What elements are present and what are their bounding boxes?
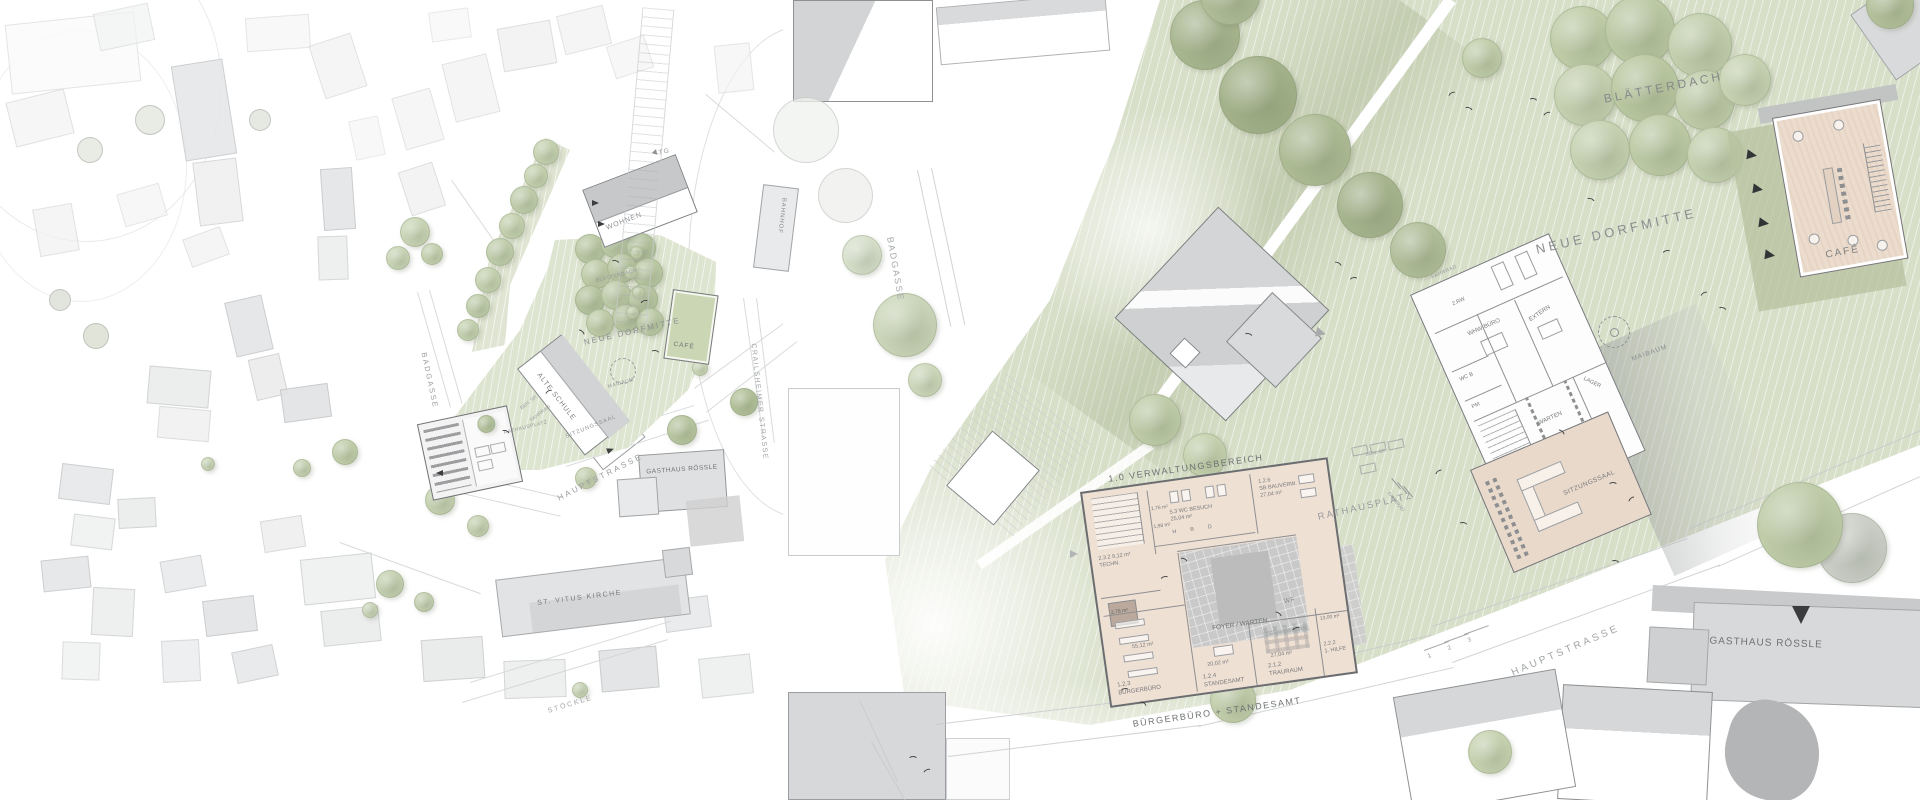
- left-deco-layer: [0, 0, 1920, 800]
- person-mark: [1434, 468, 1447, 480]
- tree: [1129, 394, 1181, 446]
- tree: [818, 168, 873, 223]
- deco-building: [1387, 438, 1405, 450]
- annex-extern-label: EXTERN: [1528, 305, 1552, 325]
- tree: [626, 233, 656, 263]
- stoeckle-label: STÖCKLE: [547, 695, 594, 715]
- annex-lager-label: LAGER: [1582, 376, 1602, 390]
- chair-grid: [1263, 622, 1310, 654]
- marker-triangle-icon: [1758, 217, 1769, 228]
- tree: [633, 258, 663, 288]
- road-line: [1464, 625, 1489, 635]
- road-line: [743, 298, 763, 437]
- road-line: [1452, 565, 1720, 663]
- tree: [628, 284, 658, 314]
- marker-triangle-icon: [436, 470, 443, 476]
- right-deco-layer: [0, 0, 1920, 800]
- deco-building: [793, 0, 933, 102]
- cafe-stairs: [1863, 141, 1892, 213]
- green-band: [1018, 0, 1502, 495]
- deco-building: [182, 226, 230, 268]
- green-alley: [470, 135, 580, 365]
- tree: [1605, 0, 1675, 65]
- tree: [621, 225, 635, 239]
- road-line: [429, 290, 462, 404]
- roessle-wing: [1647, 626, 1710, 685]
- building-shadow-blob: [1714, 691, 1831, 800]
- tree: [873, 293, 937, 357]
- annex-warten-label: WARTEN: [1537, 411, 1564, 428]
- marker-triangle-icon: [592, 200, 599, 206]
- tree: [612, 304, 640, 332]
- person-mark: [1608, 482, 1618, 490]
- tree: [135, 105, 165, 135]
- step-3: 3: [1467, 637, 1472, 644]
- tree: [1757, 482, 1843, 568]
- road-line: [1690, 430, 1920, 529]
- cafe-floorplan: CAFÉ: [1772, 99, 1908, 278]
- marker-triangle-icon: [1315, 327, 1327, 339]
- road-line: [340, 542, 481, 594]
- deco-building: [497, 20, 558, 73]
- road-line: [1444, 633, 1469, 643]
- tree: [425, 485, 455, 515]
- gasthaus-roessle-right: GASTHAUS RÖSSLE: [1690, 602, 1920, 708]
- crailsheimer-strasse-label: CRAILSHEIMER STRASSE: [750, 343, 769, 460]
- tree: [601, 280, 631, 310]
- tree: [466, 294, 490, 318]
- road-line: [705, 94, 775, 153]
- road-line: [566, 420, 709, 467]
- tg-label: TG: [651, 146, 670, 158]
- tree: [842, 235, 882, 275]
- contour-line: [0, 30, 187, 302]
- tree: [1183, 433, 1227, 477]
- tree: [908, 363, 942, 397]
- maibaum-label-left: MAIBAUM: [607, 377, 634, 390]
- deco-building: [161, 639, 201, 683]
- tree: [626, 306, 639, 319]
- person-mark: [639, 299, 651, 310]
- deco-building: [157, 406, 212, 442]
- person-mark: [1609, 559, 1620, 569]
- gasthaus-roessle-left: GASTHAUS RÖSSLE: [638, 449, 728, 513]
- tree: [1550, 6, 1614, 70]
- tree: [362, 602, 378, 618]
- road-line: [706, 341, 797, 413]
- tree: [1687, 127, 1743, 183]
- rathaus-building-left: [417, 405, 523, 500]
- maibaum-circle-right: [1598, 316, 1630, 348]
- person-mark: [1119, 687, 1130, 697]
- marker-triangle-icon: [1752, 183, 1763, 194]
- tree: [1629, 114, 1691, 176]
- road-line: [859, 700, 898, 782]
- tree: [575, 467, 597, 489]
- annex-fahrrad-label: FAHRRAD: [1431, 264, 1459, 281]
- deco-building: [398, 162, 446, 217]
- road-line: [1718, 459, 1920, 566]
- deco-car: [490, 442, 507, 455]
- road-line: [432, 486, 561, 517]
- tree: [667, 415, 697, 445]
- marker-triangle-icon: [1746, 149, 1757, 160]
- chair-column: [1491, 474, 1529, 557]
- marker-triangle-icon: [598, 221, 605, 227]
- beh-sp-label-left: BEH. SP.: [519, 394, 539, 411]
- deco-building: [320, 167, 356, 231]
- green-fade: [850, 420, 1130, 760]
- tree: [386, 246, 410, 270]
- tree: [692, 360, 708, 376]
- person-mark: [1331, 260, 1344, 272]
- deco-building: [578, 406, 645, 471]
- room-techn: 2.3.2 9,12 m² TECHN.: [1098, 552, 1132, 570]
- person-mark: [1447, 90, 1460, 102]
- deco-building: [556, 5, 612, 55]
- person-mark: [1242, 332, 1254, 342]
- room-bauverw: 1.2.6 SB BAUVERW. 27,04 m²: [1253, 464, 1332, 531]
- verwaltungsbereich-label: 1.0 VERWALTUNGSBEREICH: [1108, 452, 1264, 485]
- person-mark: [1584, 197, 1596, 208]
- alte-schule-label: ALTE SCHULE: [534, 372, 577, 423]
- road-line: [1391, 478, 1401, 489]
- cafe-terrace-band: [1727, 106, 1906, 311]
- tree: [607, 253, 637, 283]
- person-mark: [1716, 306, 1728, 316]
- road-line: [470, 621, 671, 683]
- person-mark: [1542, 110, 1554, 121]
- badgasse-label-right: BADGASSE: [885, 236, 906, 302]
- rathausplatz-label-right: RATHAUSPLATZ: [1317, 490, 1415, 523]
- neue-dorfmitte-label-right: NEUE DORFMITTE: [1534, 205, 1698, 257]
- marker-triangle-icon: [1792, 606, 1810, 624]
- road-line: [1432, 538, 1688, 627]
- tree: [575, 234, 605, 264]
- tree: [475, 267, 501, 293]
- step-2: 2: [1447, 645, 1452, 652]
- road-line: [1183, 635, 1432, 693]
- rathaus-louvers: [423, 423, 472, 493]
- person-mark: [1554, 428, 1567, 441]
- tree: [1390, 222, 1446, 278]
- deco-building: [1850, 0, 1920, 81]
- tree: [1668, 13, 1732, 77]
- tree: [1170, 0, 1240, 70]
- tree: [201, 457, 215, 471]
- deco-building: [32, 203, 80, 257]
- person-mark: [1462, 106, 1474, 117]
- tree: [1675, 70, 1735, 130]
- deco-building: [936, 0, 1110, 65]
- deco-building: [5, 11, 142, 94]
- marker-triangle-icon: [606, 446, 615, 454]
- deco-building: [192, 158, 243, 227]
- person-mark: [1348, 276, 1359, 286]
- room-hilfe: 13,00 m² 2.2.2 1. HILFE: [1316, 604, 1355, 674]
- road-line: [1403, 486, 1413, 497]
- sitzungssaal-label-right: SITZUNGSSAAL: [1562, 469, 1616, 498]
- badgasse-label-left: BADGASSE: [420, 352, 441, 410]
- room-foyer: FOYER / WARTEN: [1179, 536, 1309, 647]
- deco-building: [1351, 444, 1369, 456]
- deco-building: [280, 383, 332, 423]
- tree: [1462, 38, 1502, 78]
- tree: [332, 439, 358, 465]
- deco-building: [300, 552, 376, 605]
- room-storage: 2,78 m²: [1108, 599, 1139, 627]
- deco-building: [1369, 441, 1387, 453]
- deco-building: [248, 353, 289, 401]
- person-mark: [1699, 290, 1712, 302]
- annex-shadow: [1577, 304, 1793, 576]
- deco-building: [348, 115, 386, 160]
- tree: [575, 285, 605, 315]
- maibaum-label-right: MAIBAUM: [1631, 343, 1668, 362]
- marker-triangle-icon: [1764, 249, 1775, 260]
- tree: [730, 388, 758, 416]
- annex-wf-label: WF: [1538, 453, 1549, 463]
- person-mark: [908, 756, 918, 764]
- step-1: 1: [1427, 653, 1432, 660]
- church-shadow: [529, 585, 682, 633]
- room-trauraum: 27,04 m² 2.1.2 TRAURAUM: [1252, 615, 1322, 685]
- path-diagonal: [976, 441, 1154, 570]
- tg-triangle-icon: [651, 149, 657, 156]
- hauptstrasse-label-right: HAUPTSTRASSE: [1510, 623, 1622, 679]
- tree: [1554, 64, 1616, 126]
- maibaum-dot: [1610, 328, 1619, 337]
- tree: [467, 515, 489, 537]
- annex-wcb-label: WC B: [1459, 371, 1475, 383]
- room-small1: 1,76 m²: [1151, 504, 1169, 513]
- tree: [499, 213, 525, 239]
- tree: [632, 286, 645, 299]
- tree: [1468, 730, 1512, 774]
- person-mark: [922, 767, 934, 778]
- road-line: [436, 468, 563, 498]
- cafe-label-left: CAFÉ: [673, 341, 695, 352]
- room-wc: 5.3 WC BESUCH 25,04 m² HBD: [1165, 481, 1256, 550]
- deco-building: [428, 7, 472, 42]
- tree: [376, 570, 404, 598]
- room-buergerbuero: 55,12 m² 1.2.3 BÜRGERBÜRO: [1104, 607, 1197, 704]
- tree: [1210, 677, 1256, 723]
- gasthaus-wing: [617, 477, 660, 518]
- person-mark: [499, 429, 511, 440]
- tree: [773, 97, 839, 163]
- tree: [510, 186, 538, 214]
- deco-building: [224, 294, 274, 357]
- deco-building: [91, 587, 135, 637]
- tree: [1279, 114, 1351, 186]
- tree: [83, 323, 109, 349]
- deco-building: [606, 35, 655, 80]
- stairs: [1091, 492, 1145, 550]
- road-line: [948, 725, 1201, 757]
- tree: [400, 217, 430, 247]
- counter-stools: [1837, 168, 1851, 220]
- deco-building: [1359, 462, 1377, 474]
- tree: [457, 319, 479, 341]
- roessle-barn2: [1393, 669, 1576, 800]
- road-line: [451, 180, 503, 254]
- person-mark: [1661, 249, 1673, 259]
- tree: [1570, 120, 1630, 180]
- path-diagonal: [1140, 0, 1455, 424]
- alte-schule-building: ALTE SCHULE: [517, 334, 629, 455]
- deco-building: [260, 515, 306, 553]
- tree: [293, 459, 311, 477]
- green-fade: [930, 680, 1390, 800]
- deco-building: [317, 235, 349, 280]
- right-deco2-layer: [0, 0, 1920, 800]
- person-mark: [1527, 97, 1538, 107]
- room-small2: 1,98 m²: [1153, 522, 1171, 531]
- wohnen-building: WOHNEN: [582, 154, 698, 248]
- person-mark: [1627, 495, 1640, 508]
- person-mark: [1457, 521, 1468, 531]
- annex-floorplan: FAHRRAD 2.RW WHW-BÜRO EXTERN WC B PM WAR…: [1410, 233, 1646, 512]
- tree: [1817, 513, 1887, 583]
- fahrrad-label-left: FAHRRAD: [529, 404, 552, 423]
- person-mark: [609, 259, 621, 269]
- existing-building-wing: [1226, 292, 1322, 388]
- deco-building: [146, 365, 211, 408]
- deco-building: [40, 556, 91, 593]
- cafe-wall-band: [1758, 84, 1899, 124]
- tree: [1200, 0, 1260, 25]
- road-line: [1435, 299, 1442, 314]
- deco-building: [598, 646, 659, 693]
- deco-building: [503, 659, 566, 699]
- annex-whw-label: WHW-BÜRO: [1467, 318, 1502, 339]
- contour-line: [0, 0, 222, 242]
- deco-building: [320, 605, 381, 647]
- cafe-building-left: CAFÉ: [663, 289, 718, 365]
- bench-row: [1563, 380, 1587, 429]
- tree: [586, 309, 614, 337]
- road-line: [931, 168, 965, 325]
- tree: [533, 139, 559, 165]
- annex-stairs: [1478, 409, 1538, 477]
- deco-building: [441, 53, 500, 122]
- room-standesamt: 20,02 m² 1.2.4 STANDESAMT: [1193, 630, 1256, 693]
- gasthaus-roessle-label-left: GASTHAUS RÖSSLE: [646, 464, 718, 477]
- railway-tracks: [614, 7, 675, 339]
- deco-car: [474, 445, 491, 458]
- road-line: [1451, 293, 1458, 308]
- deco-building: [160, 555, 207, 594]
- annex-rw-label: 2.RW: [1451, 296, 1466, 308]
- tree: [524, 164, 548, 188]
- rathausplatz-label-left: RATHAUSPLATZ: [503, 419, 548, 436]
- existing-building-cube: [1169, 337, 1200, 368]
- tree: [636, 308, 664, 336]
- person-mark: [1271, 610, 1284, 622]
- sitzungssaal-floorplan: SITZUNGSSAAL: [1470, 411, 1652, 573]
- st-vitus-label: ST. VITUS KIRCHE: [537, 589, 623, 608]
- tree: [624, 266, 637, 279]
- bahnhof-building: BAHNHOF: [753, 184, 799, 272]
- deco-building: [202, 595, 258, 637]
- deco-building: [61, 641, 100, 680]
- tree: [249, 109, 271, 131]
- fahrrad-label-right: FAHRRAD: [1386, 491, 1406, 513]
- tree: [421, 243, 443, 265]
- rathaus-roof-deck: [462, 411, 518, 486]
- roessle-barn: [1557, 684, 1713, 800]
- hauptstrasse-label-left: HAUPTSTRASSE: [556, 452, 644, 503]
- church-tower: [662, 547, 693, 578]
- left-panel: WOHNEN BAHNHOF ALTE SCHULE CAFÉ GAST: [0, 0, 1920, 800]
- person-mark: [574, 328, 587, 341]
- road-line: [560, 405, 694, 447]
- deco-building: [662, 595, 712, 633]
- tree: [1219, 56, 1297, 134]
- annex-pm-label: PM: [1471, 401, 1481, 411]
- deco-building: [714, 42, 755, 94]
- person-mark: [649, 349, 660, 359]
- deco-building: [171, 59, 237, 162]
- deco-building: [788, 388, 900, 556]
- deco-building: [93, 3, 156, 52]
- person-mark: [1291, 626, 1303, 637]
- road-line: [1424, 641, 1449, 651]
- tree: [572, 682, 588, 698]
- small-white-building: [946, 430, 1040, 525]
- foyer-inner: [1211, 550, 1278, 625]
- road-line: [1427, 302, 1434, 317]
- road-curve: [688, 26, 915, 518]
- blaetterdach-label-right: BLÄTTERDACH: [1603, 69, 1724, 106]
- tree: [1719, 54, 1771, 106]
- road-line: [462, 639, 668, 703]
- blaetterdach-label-left: BLÄTTERDACH: [595, 268, 637, 284]
- road-line: [1397, 482, 1407, 493]
- right-panel: 1.0 VERWALTUNGSBEREICH 2.3.2 9,12 m² TEC…: [0, 0, 1920, 800]
- cafe-label-right: CAFÉ: [1825, 244, 1861, 262]
- deco-building: [308, 33, 367, 100]
- deco-building: [231, 644, 279, 684]
- person-mark: [1159, 575, 1171, 585]
- deco-building: [245, 14, 311, 52]
- chair-column: [1483, 477, 1521, 560]
- deco-building: [946, 738, 1010, 800]
- person-mark: [544, 388, 557, 400]
- bahnhof-label: BAHNHOF: [775, 197, 787, 234]
- deco-car: [477, 459, 494, 472]
- deco-building: [698, 653, 754, 698]
- green-field: [860, 0, 1920, 770]
- roessle-roof-strip: [1652, 585, 1920, 625]
- buergerbuero-standesamt-label: BÜRGERBÜRO + STANDESAMT: [1132, 695, 1302, 730]
- deco-building: [58, 463, 114, 505]
- maibaum-circle: [610, 358, 636, 384]
- tree: [1866, 0, 1914, 29]
- sitzungssaal-label-left: SITZUNGSSAAL: [565, 414, 617, 440]
- rathaus-floorplan: 1.0 VERWALTUNGSBEREICH 2.3.2 9,12 m² TEC…: [1080, 457, 1358, 708]
- deco-building: [5, 88, 74, 147]
- wc-stalls: HBD: [1172, 522, 1226, 536]
- road-line: [694, 323, 784, 388]
- gasthaus-roessle-label-right: GASTHAUS RÖSSLE: [1709, 636, 1823, 652]
- site-plan-canvas: WOHNEN BAHNHOF ALTE SCHULE CAFÉ GAST: [0, 0, 1920, 800]
- road-line: [1443, 296, 1450, 311]
- green-plaza: [440, 230, 730, 490]
- deco-building: [788, 692, 946, 800]
- marker-triangle-icon: [1070, 550, 1078, 558]
